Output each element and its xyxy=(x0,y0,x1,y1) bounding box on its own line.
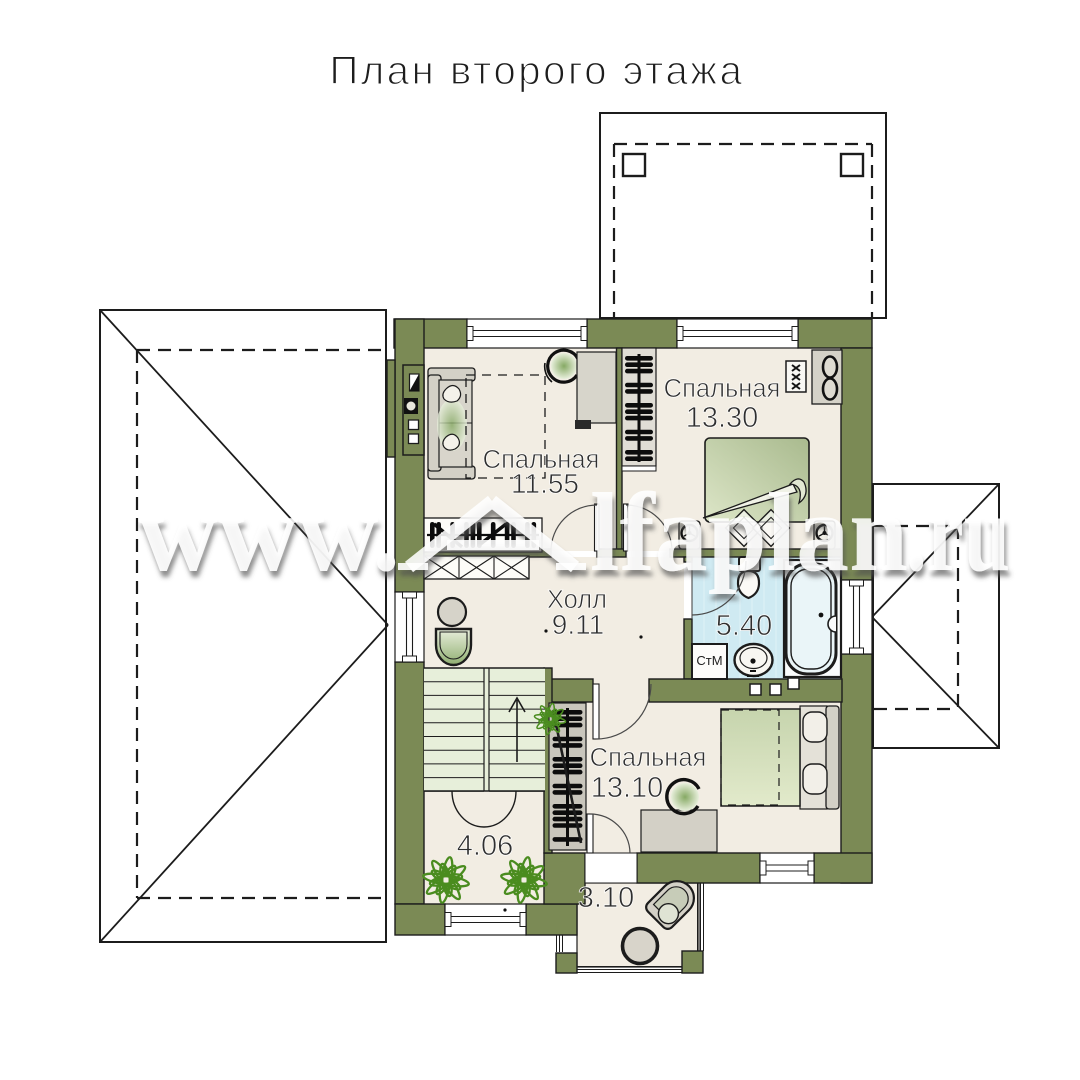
svg-text:Спальная: Спальная xyxy=(664,375,781,403)
svg-text:СтМ: СтМ xyxy=(696,653,722,668)
svg-text:4.06: 4.06 xyxy=(457,830,513,862)
svg-text:13.10: 13.10 xyxy=(591,772,664,804)
svg-text:.ru: .ru xyxy=(906,471,1010,595)
svg-text:lfaplan: lfaplan xyxy=(590,471,908,595)
svg-text:Спальная: Спальная xyxy=(590,744,707,772)
svg-text:11.55: 11.55 xyxy=(511,468,579,499)
svg-text:www.: www. xyxy=(138,471,400,595)
svg-text:13.30: 13.30 xyxy=(686,402,759,434)
svg-text:План второго этажа: План второго этажа xyxy=(329,49,744,93)
svg-text:3.10: 3.10 xyxy=(578,882,634,914)
svg-text:9.11: 9.11 xyxy=(552,609,604,640)
svg-text:5.40: 5.40 xyxy=(716,610,772,642)
